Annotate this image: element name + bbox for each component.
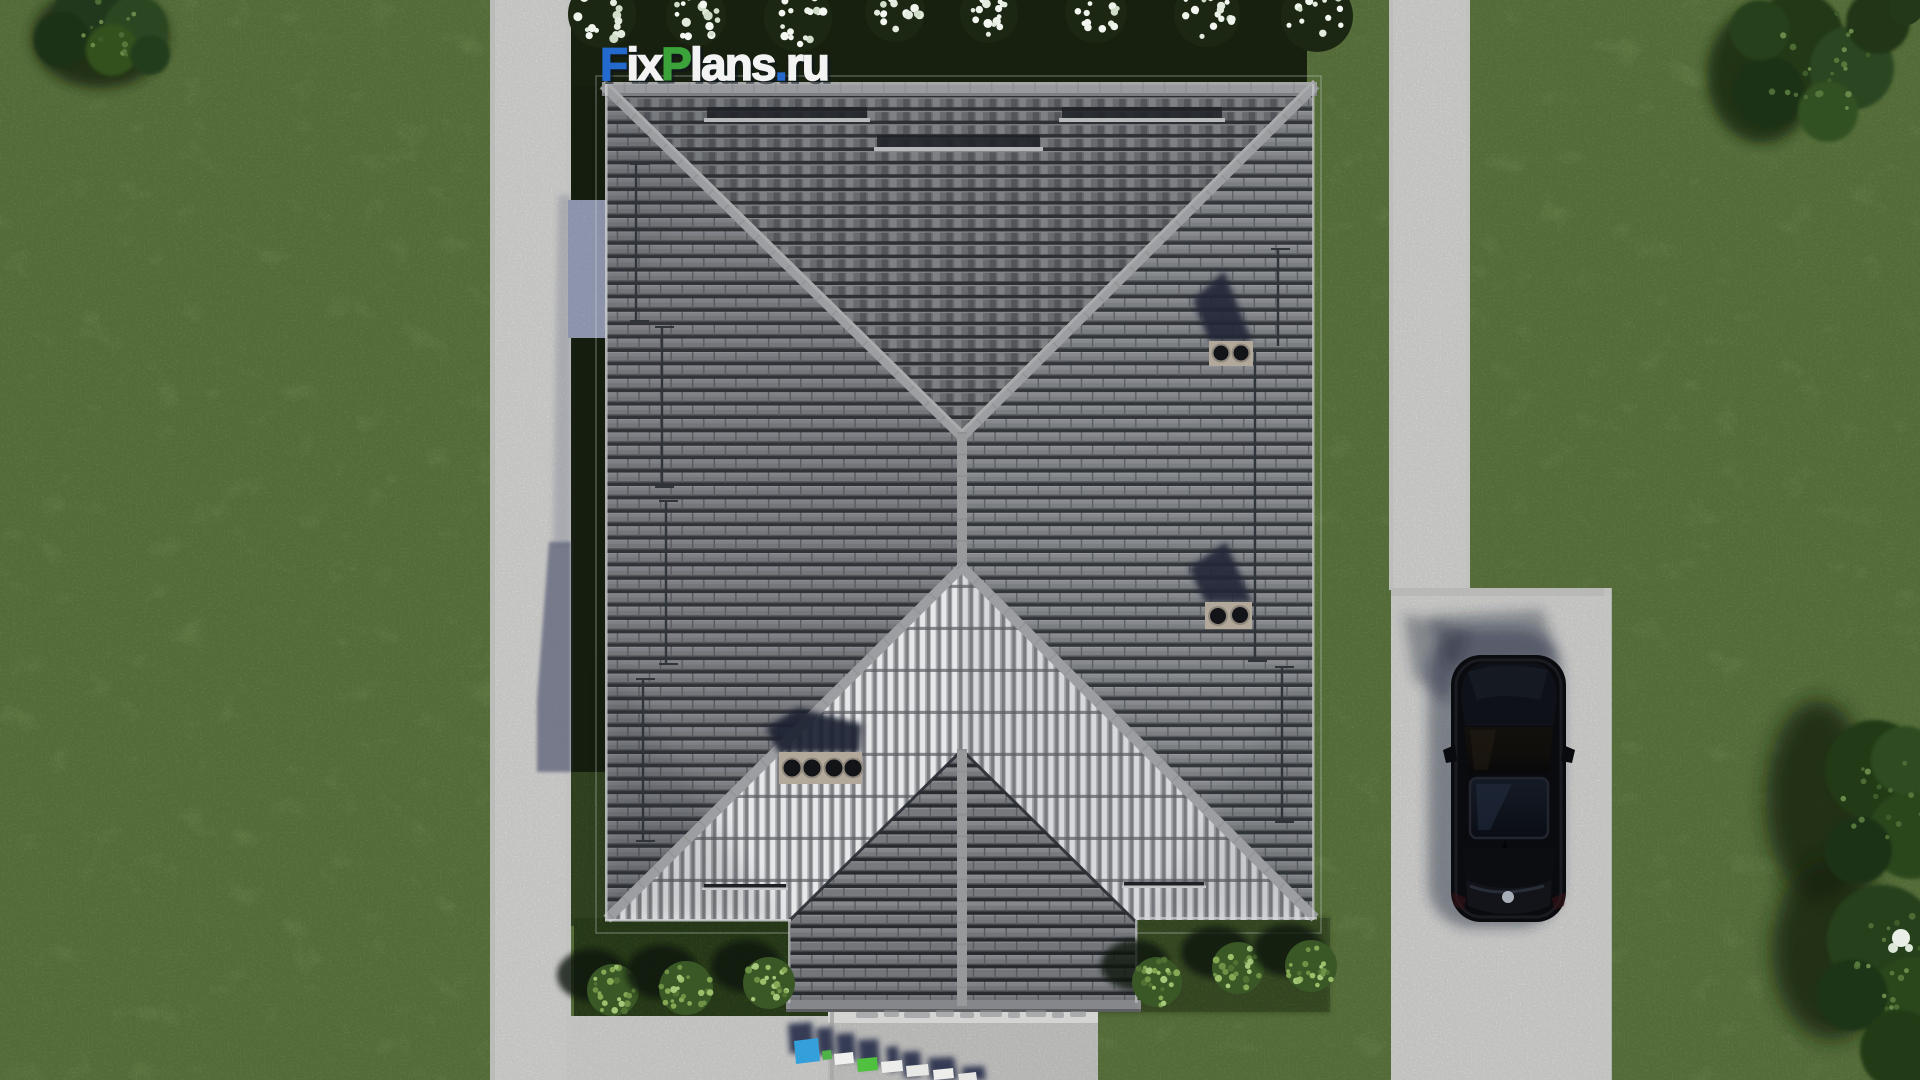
svg-text:FixPlans.ru: FixPlans.ru xyxy=(600,38,828,90)
